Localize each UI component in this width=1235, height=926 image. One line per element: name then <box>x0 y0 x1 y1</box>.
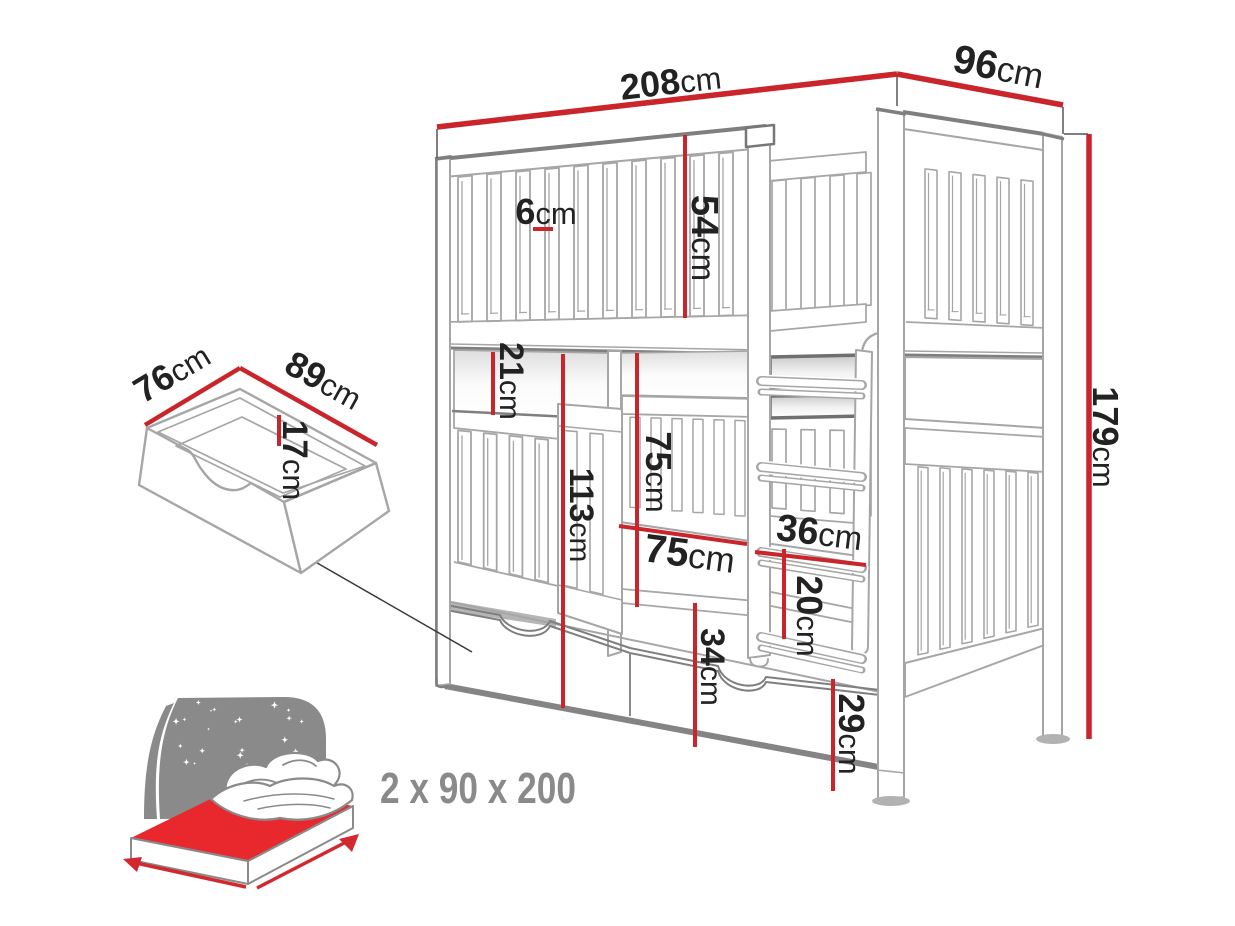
svg-text:6cm: 6cm <box>515 191 576 232</box>
svg-text:113cm: 113cm <box>562 468 600 563</box>
svg-text:179cm: 179cm <box>1085 386 1126 487</box>
svg-text:20cm: 20cm <box>789 575 830 656</box>
svg-text:29cm: 29cm <box>831 693 872 774</box>
svg-text:34cm: 34cm <box>693 628 731 706</box>
svg-text:2 x 90 x 200: 2 x 90 x 200 <box>380 764 576 813</box>
svg-text:54cm: 54cm <box>683 195 725 281</box>
svg-text:75cm: 75cm <box>638 431 679 512</box>
svg-text:21cm: 21cm <box>492 342 530 420</box>
svg-text:17cm: 17cm <box>275 420 314 500</box>
